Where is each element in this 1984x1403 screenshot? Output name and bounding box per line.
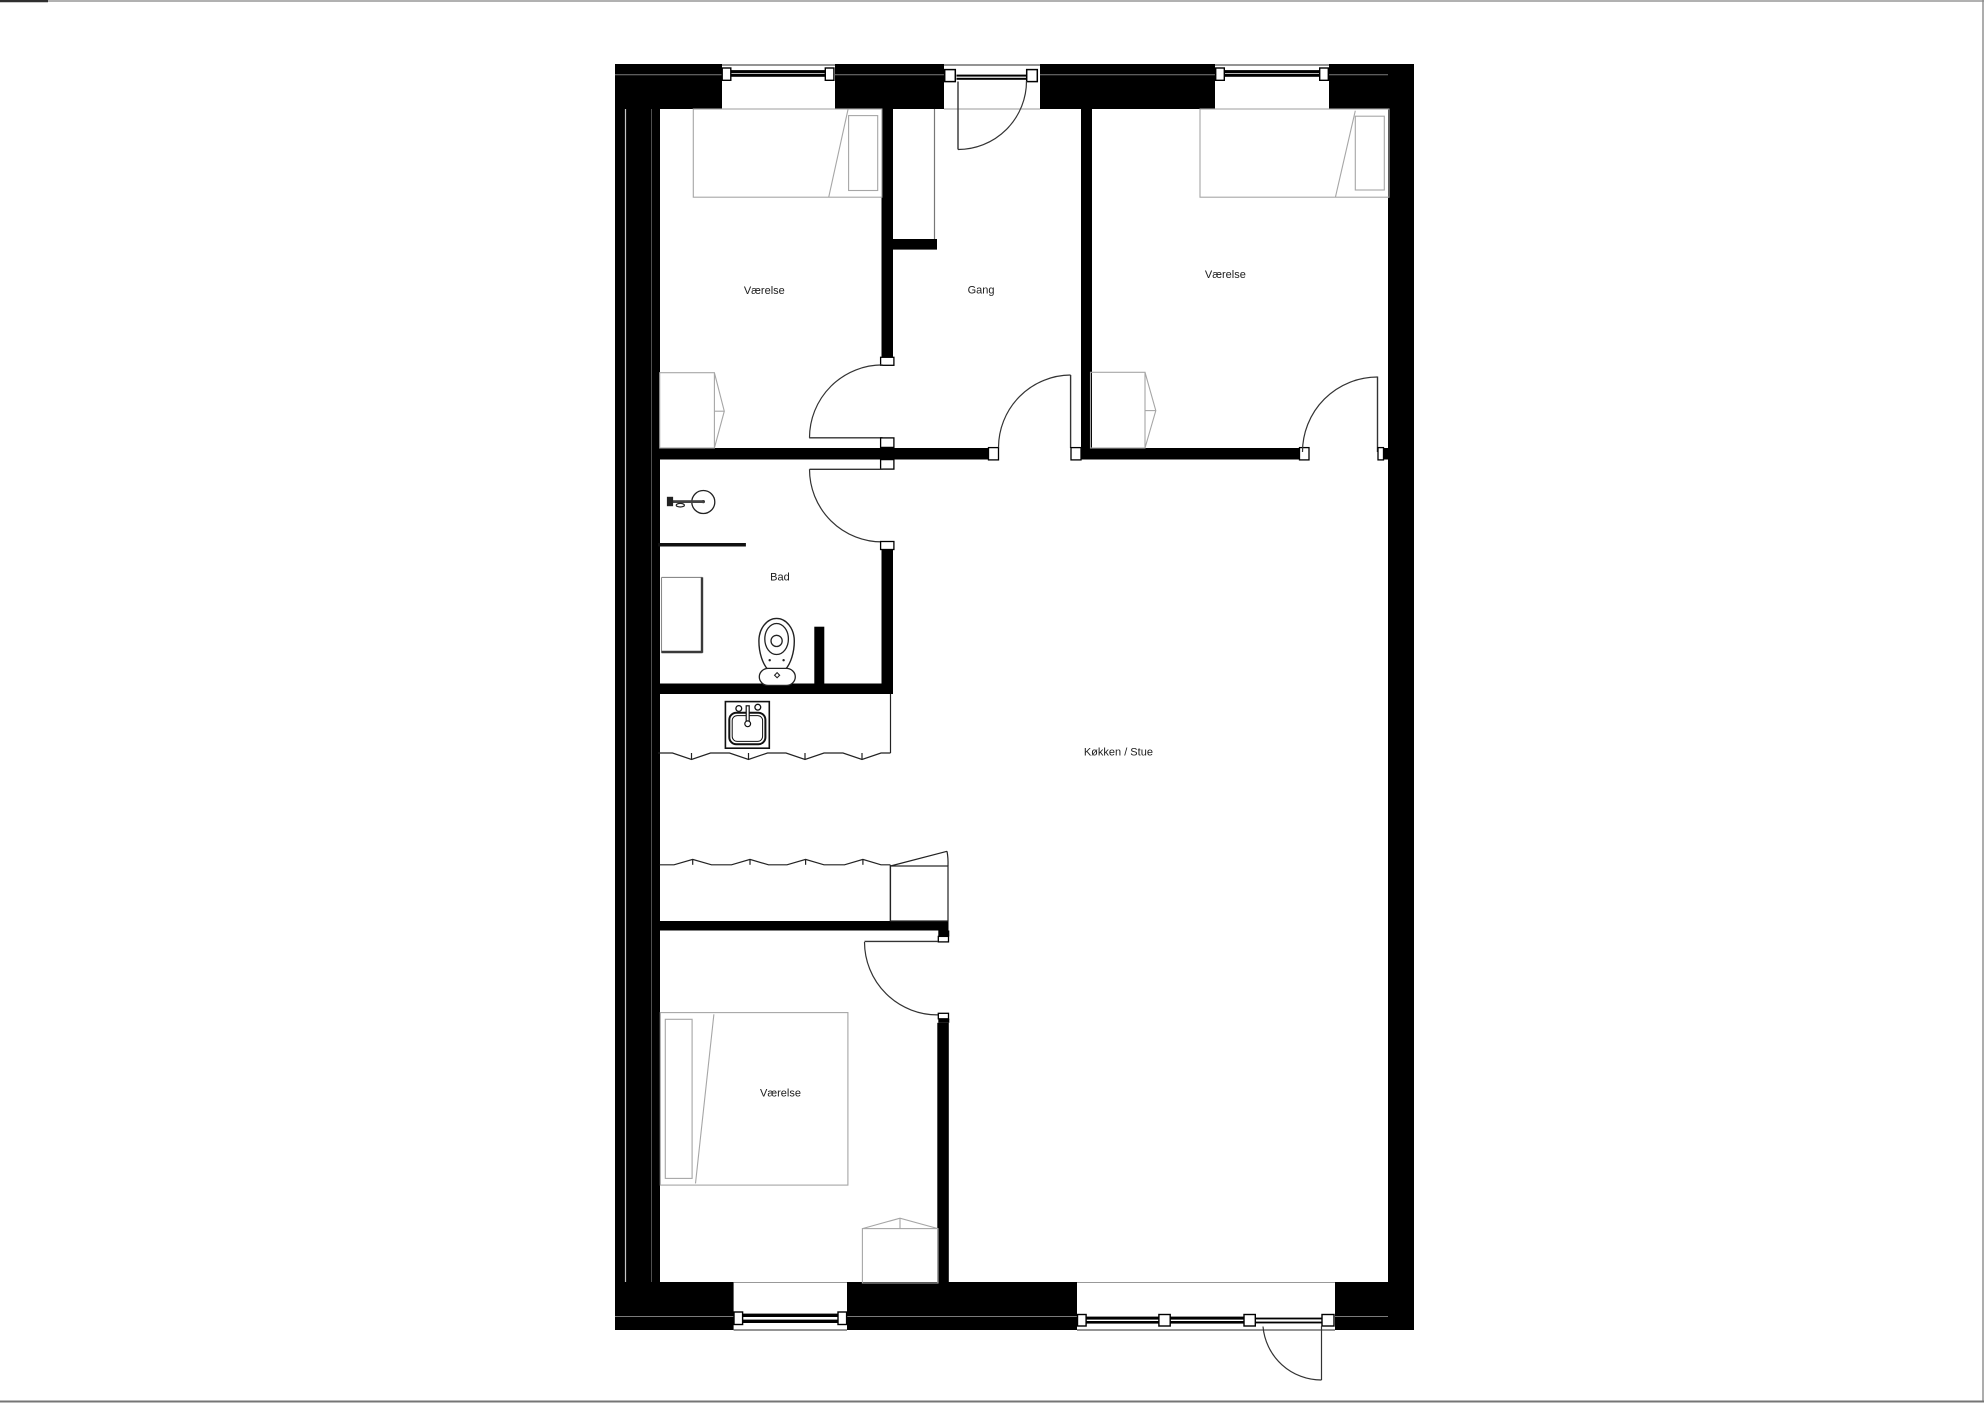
- svg-text:Værelse: Værelse: [760, 1088, 801, 1100]
- svg-text:Bad: Bad: [770, 571, 790, 583]
- svg-text:Værelse: Værelse: [744, 285, 785, 297]
- svg-text:Køkken / Stue: Køkken / Stue: [1084, 747, 1153, 759]
- svg-text:Gang: Gang: [968, 285, 995, 297]
- svg-text:Værelse: Værelse: [1205, 269, 1246, 281]
